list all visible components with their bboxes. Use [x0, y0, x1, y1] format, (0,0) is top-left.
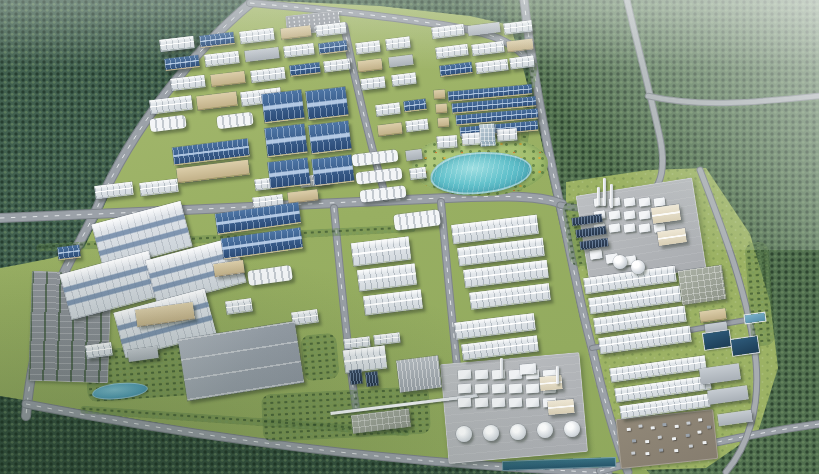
lakefront-offices-building-w [437, 135, 458, 148]
lakefront-offices-building-glass [479, 124, 495, 147]
east-power-plant-building-x [623, 223, 635, 232]
mid-tank-farm-building-g [405, 149, 422, 161]
central-blue-halls-building-B [264, 124, 307, 158]
exhaust-stack [556, 366, 559, 384]
parked-car [697, 430, 701, 433]
chemical-silo-row [510, 424, 526, 440]
east-warehouse-rows-building-G2 [678, 265, 726, 305]
east-power-plant-building-x [608, 223, 620, 232]
south-chemical-plant-building-x [520, 363, 537, 374]
lakefront-offices-building-w [497, 128, 518, 141]
east-power-plant-building-x [638, 197, 650, 206]
south-chemical-plant-building-x [526, 397, 540, 407]
south-chemical-plant-building-x [475, 397, 489, 407]
east-power-plant-building-x [623, 210, 635, 219]
central-blue-halls-building-B [308, 121, 351, 155]
parked-car [645, 440, 649, 443]
parked-car [686, 421, 690, 424]
central-blue-halls-building-B [261, 90, 304, 124]
parked-car [707, 425, 711, 428]
parked-car [662, 423, 666, 426]
exhaust-stack [500, 358, 503, 378]
grove-east-of-gray-hall [300, 333, 340, 382]
parked-car [631, 451, 635, 454]
south-chemical-plant-building-x [509, 383, 523, 393]
east-power-plant-building-x [589, 249, 602, 260]
parked-car [658, 436, 662, 439]
parked-car [689, 444, 693, 447]
parked-car [627, 428, 631, 431]
east-power-plant-building-x [608, 210, 620, 219]
parked-car [686, 434, 690, 437]
south-chemical-plant-building-x [492, 397, 506, 407]
parked-car [702, 441, 706, 444]
parked-car [672, 437, 676, 440]
cooling-tower [631, 260, 645, 274]
central-blue-halls-building-B [268, 158, 311, 190]
northwest-processing-building-b [57, 245, 80, 261]
south-central-factories-building-gr [396, 356, 442, 393]
southeast-parking-lot [616, 409, 719, 469]
chemical-silo-row [483, 425, 499, 441]
south-chemical-plant-building-x [458, 369, 472, 379]
south-central-factories-building-Pn [365, 371, 379, 386]
south-chemical-plant-building-x [526, 383, 540, 393]
parked-car [651, 426, 655, 429]
east-blue-rows-building-t [438, 118, 450, 128]
south-chemical-plant-building-x [492, 369, 506, 379]
south-chemical-plant-building-x [475, 369, 489, 379]
east-power-plant-building-x [638, 210, 650, 219]
south-chemical-plant-building-t2 [547, 399, 574, 415]
central-blue-halls-building-B [312, 155, 355, 187]
south-chemical-plant-building-x [492, 383, 506, 393]
industrial-park-aerial-render [0, 0, 819, 474]
exhaust-stack [603, 178, 606, 206]
exhaust-stack [610, 184, 613, 208]
chemical-silo-row [456, 426, 472, 442]
east-blue-rows-building-t [436, 104, 448, 114]
exhaust-stack [597, 187, 600, 205]
parked-car [645, 452, 649, 455]
cooling-tower [613, 255, 627, 269]
south-chemical-plant-building-t2 [539, 375, 562, 391]
parked-car [638, 424, 642, 427]
east-power-plant-building-x [623, 197, 635, 206]
east-power-plant-building-x [638, 223, 650, 232]
central-blue-halls-building-B [305, 87, 348, 121]
parked-car [659, 448, 663, 451]
south-chemical-plant-building-x [475, 383, 489, 393]
south-chemical-plant-building-x [458, 397, 472, 407]
east-blue-rows-building-t [434, 90, 446, 100]
parked-car [698, 418, 702, 421]
south-central-factories-building-Pn [349, 369, 363, 384]
parked-car [675, 425, 679, 428]
south-chemical-plant-building-x [509, 397, 523, 407]
south-chemical-plant-building-x [458, 383, 472, 393]
parked-car [674, 449, 678, 452]
mid-tank-farm-building-w [409, 167, 426, 180]
parked-car [632, 439, 636, 442]
